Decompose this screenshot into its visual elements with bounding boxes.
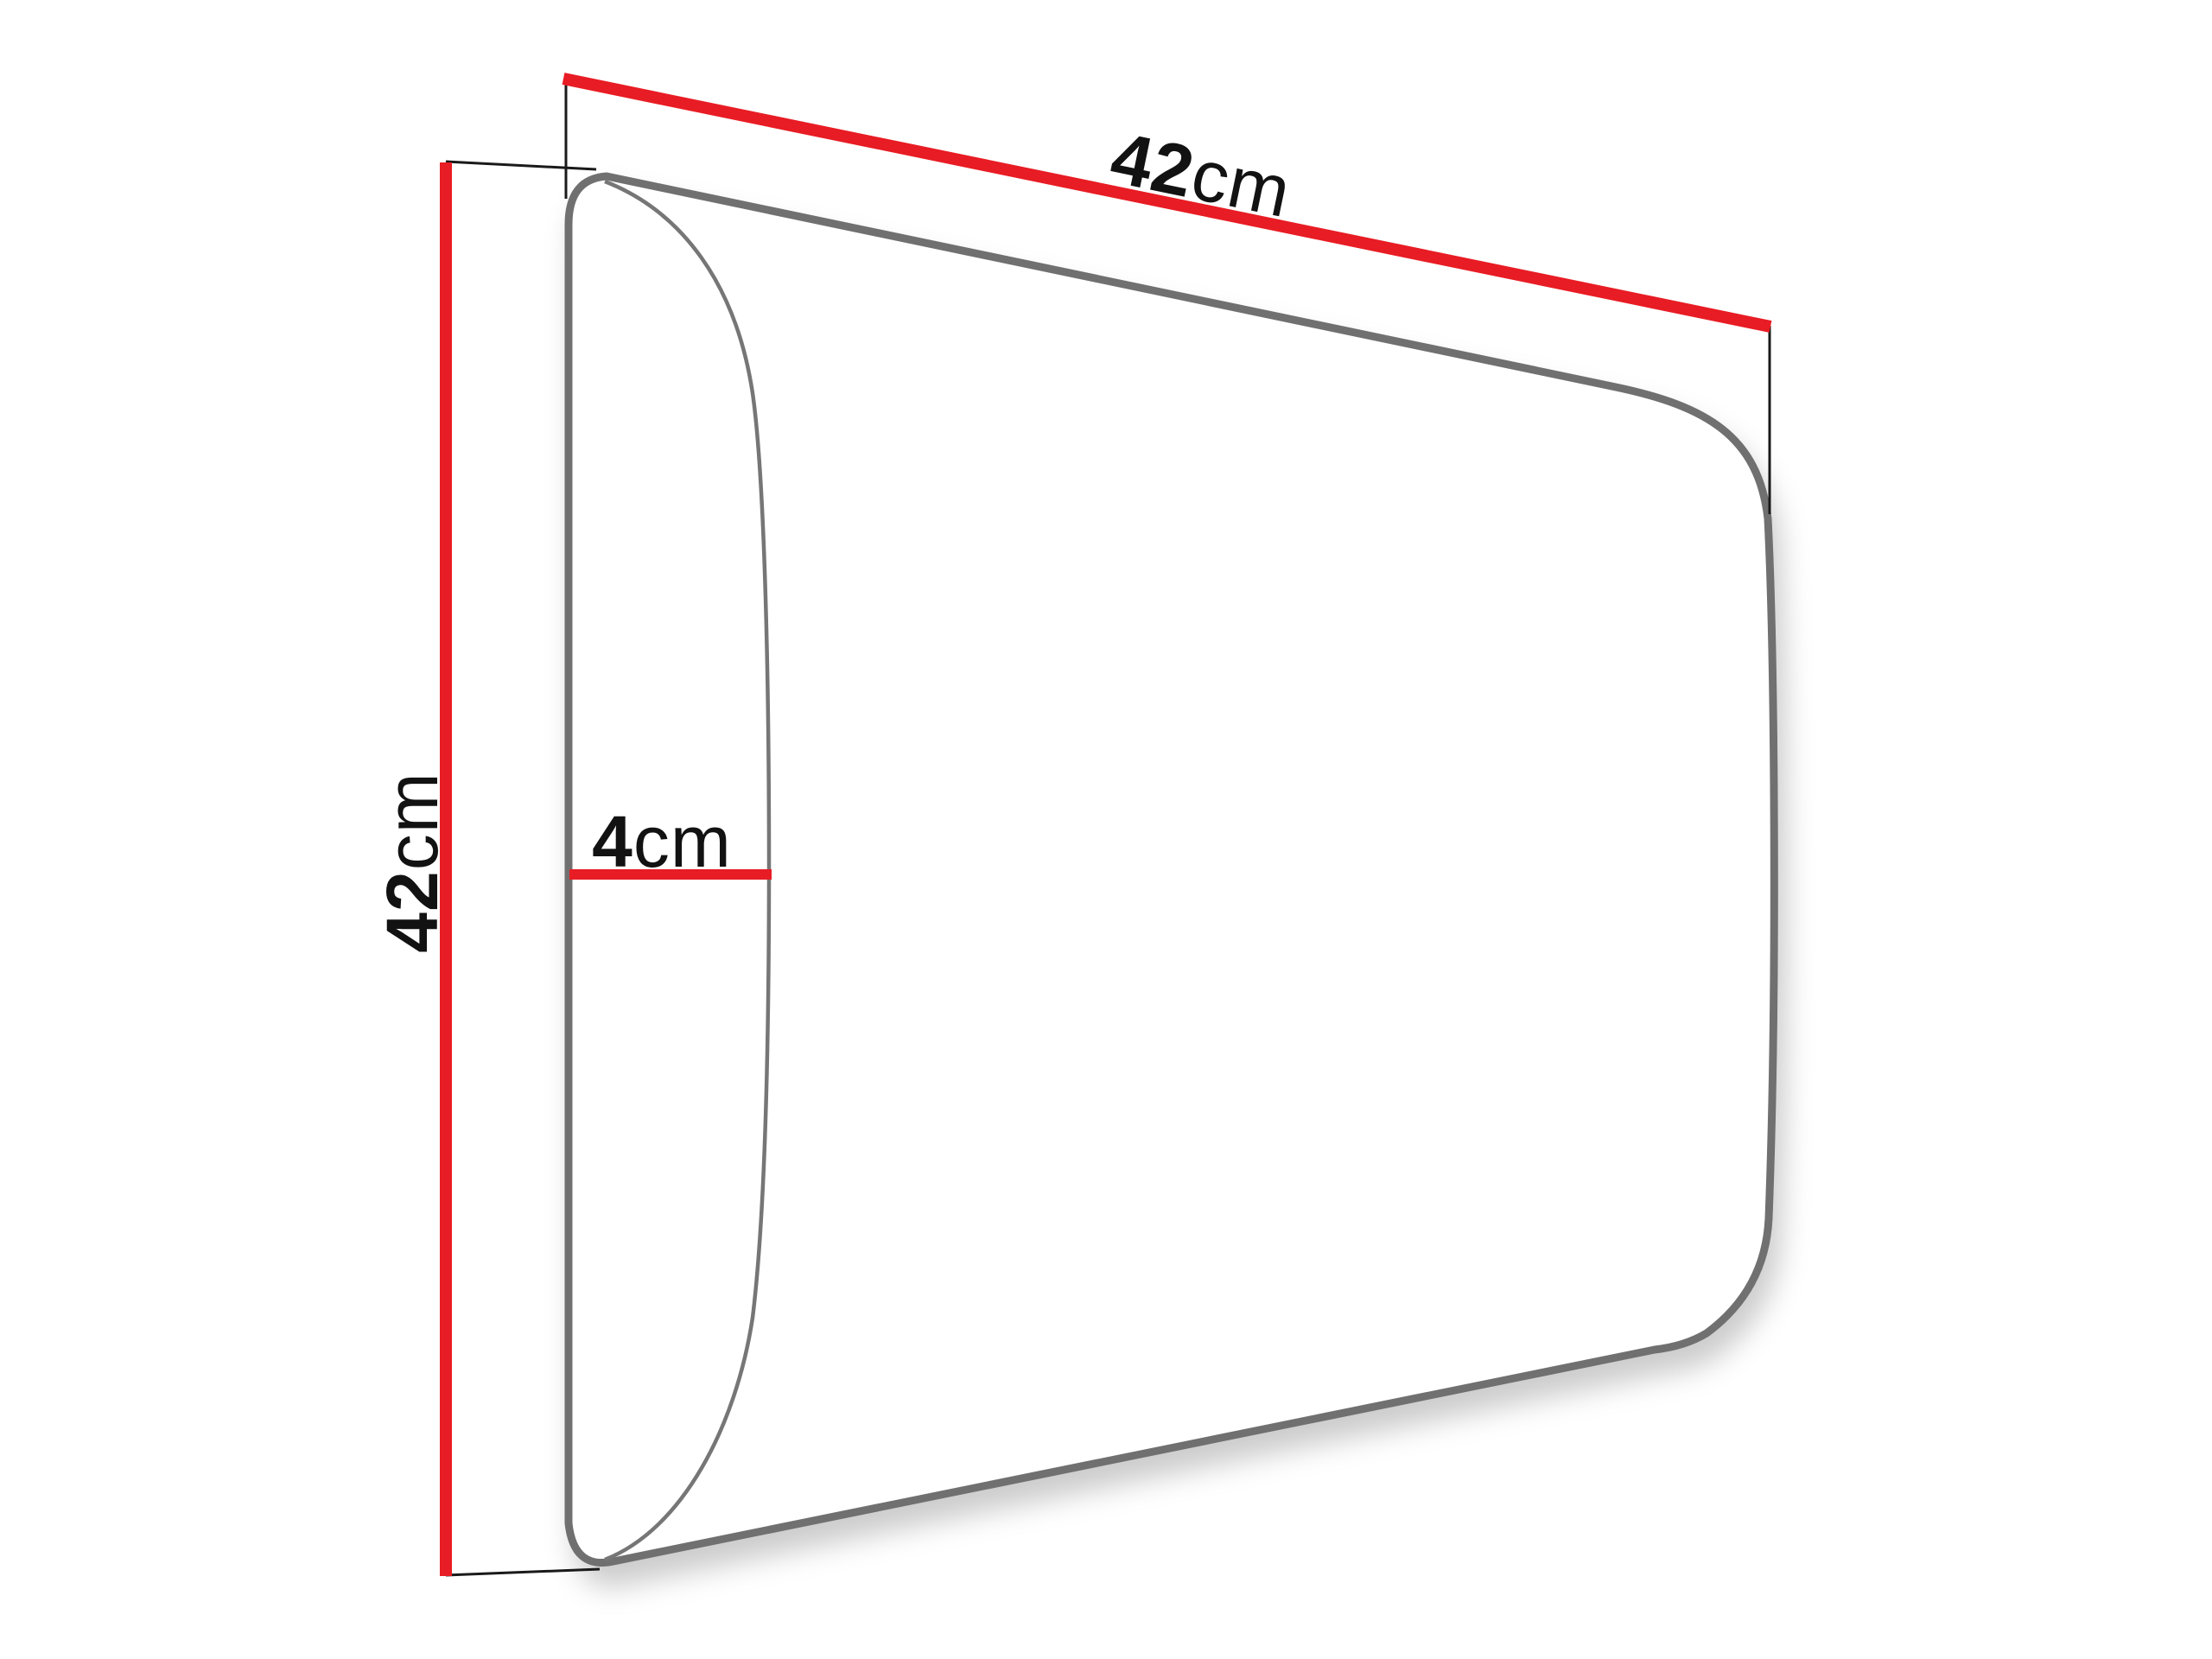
panel-drawing-svg: [0, 0, 2212, 1659]
panel-dimension-diagram: 42cm 42cm 4cm: [0, 0, 2212, 1659]
extension-line-bottom-left-horizontal: [446, 1569, 600, 1575]
depth-value: 4: [592, 801, 633, 882]
depth-dimension-label: 4cm: [592, 805, 732, 878]
height-dimension-label: 42cm: [376, 772, 448, 952]
extension-line-top-left-horizontal: [446, 162, 596, 169]
height-unit: cm: [372, 772, 453, 870]
depth-unit: cm: [633, 801, 732, 882]
height-value: 42: [372, 870, 453, 952]
